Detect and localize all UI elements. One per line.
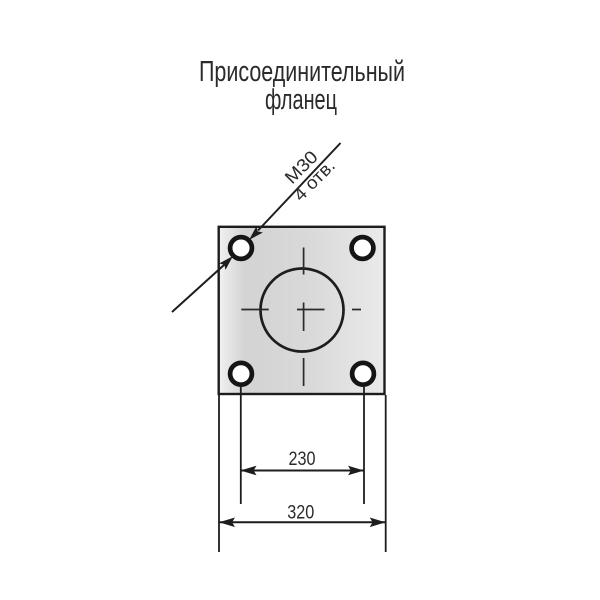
svg-text:230: 230 [289,449,316,470]
svg-text:фланец: фланец [265,84,337,116]
svg-text:320: 320 [287,503,314,524]
